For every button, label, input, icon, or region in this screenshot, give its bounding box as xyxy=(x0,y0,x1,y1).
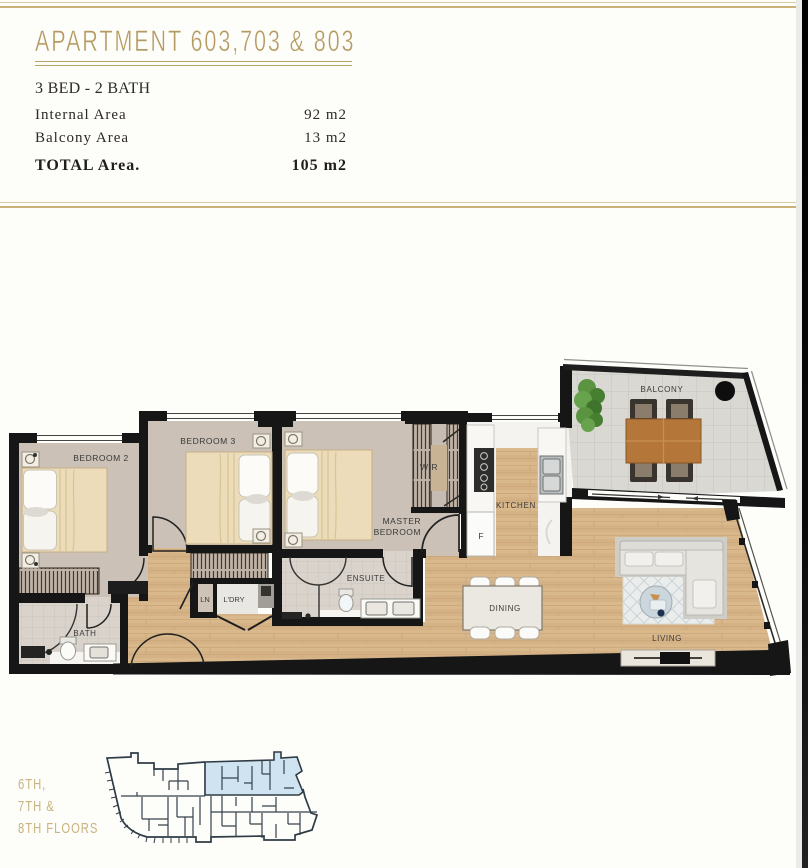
svg-text:MASTER: MASTER xyxy=(383,516,421,526)
svg-text:ENSUITE: ENSUITE xyxy=(347,574,385,583)
svg-text:BATH: BATH xyxy=(73,629,96,638)
svg-text:LIVING: LIVING xyxy=(652,634,682,643)
svg-text:KITCHEN: KITCHEN xyxy=(496,501,536,510)
svg-text:L'DRY: L'DRY xyxy=(223,595,244,604)
svg-text:LN: LN xyxy=(200,595,210,604)
svg-text:BEDROOM: BEDROOM xyxy=(374,527,421,537)
svg-text:DINING: DINING xyxy=(489,604,521,613)
svg-text:BALCONY: BALCONY xyxy=(640,385,683,394)
svg-text:BEDROOM 2: BEDROOM 2 xyxy=(73,453,129,463)
svg-text:BEDROOM 3: BEDROOM 3 xyxy=(180,436,236,446)
svg-text:WIR: WIR xyxy=(420,462,438,472)
svg-text:F: F xyxy=(478,531,483,541)
